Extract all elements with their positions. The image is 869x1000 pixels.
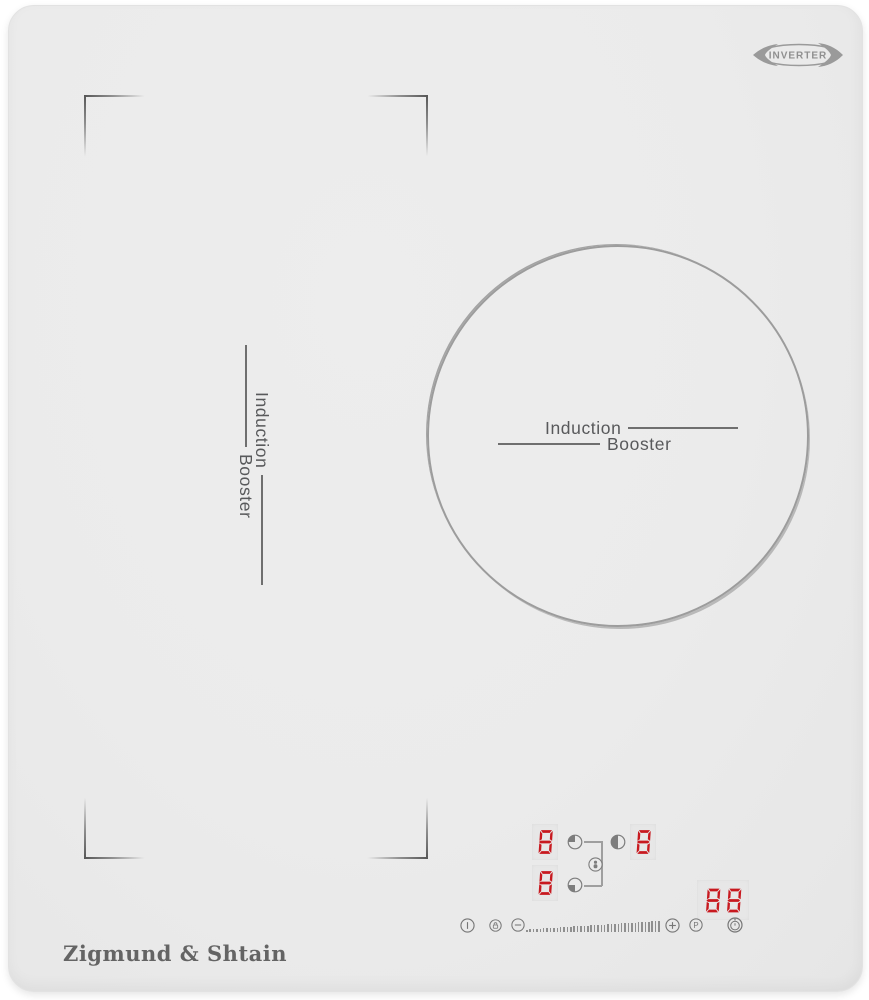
slider-tick[interactable] bbox=[594, 925, 596, 932]
power-button[interactable] bbox=[460, 918, 475, 933]
flex-zone-bracket-top-right bbox=[365, 95, 428, 159]
label-dash bbox=[245, 345, 247, 447]
slider-tick[interactable] bbox=[577, 926, 579, 932]
slider-tick[interactable] bbox=[645, 922, 647, 932]
alarm-clock-icon bbox=[727, 917, 743, 933]
increase-button[interactable] bbox=[665, 918, 680, 933]
power-display-right bbox=[630, 824, 656, 860]
cooktop-glass-surface: INVERTER Induction Booster Induction bbox=[8, 5, 863, 992]
slider-tick[interactable] bbox=[655, 921, 657, 932]
brand-logo: Zigmund & Shtain bbox=[63, 941, 287, 966]
zone-icon-left-rear bbox=[567, 834, 583, 850]
slider-tick[interactable] bbox=[536, 929, 538, 932]
power-display-left-front bbox=[532, 865, 558, 901]
slider-tick[interactable] bbox=[550, 928, 552, 932]
child-lock-indicator-icon bbox=[588, 857, 603, 872]
booster-p-button[interactable]: P bbox=[689, 918, 703, 932]
booster-p-icon: P bbox=[689, 918, 703, 932]
slider-tick[interactable] bbox=[560, 927, 562, 932]
inverter-badge: INVERTER bbox=[751, 40, 845, 70]
cooktop-product-image: INVERTER Induction Booster Induction bbox=[0, 0, 869, 1000]
padlock-icon bbox=[489, 919, 502, 932]
slider-tick[interactable] bbox=[557, 928, 559, 932]
slider-tick[interactable] bbox=[604, 925, 606, 933]
slider-tick[interactable] bbox=[648, 922, 650, 932]
slider-tick[interactable] bbox=[584, 926, 586, 932]
slider-tick[interactable] bbox=[641, 922, 643, 932]
slider-tick[interactable] bbox=[529, 929, 531, 932]
seven-segment-digit bbox=[634, 828, 653, 856]
slider-tick[interactable] bbox=[543, 928, 545, 932]
label-dash bbox=[261, 475, 263, 585]
flex-zone-bracket-top-left bbox=[84, 95, 147, 159]
left-zone-booster-label: Booster bbox=[238, 454, 254, 519]
slider-tick[interactable] bbox=[651, 921, 653, 932]
plus-icon bbox=[665, 918, 680, 933]
child-lock-button[interactable] bbox=[489, 919, 502, 932]
slider-tick[interactable] bbox=[638, 922, 640, 932]
slider-tick[interactable] bbox=[590, 925, 592, 932]
right-zone-booster-label: Booster bbox=[607, 436, 672, 452]
flex-zone-bracket-bottom-left bbox=[84, 795, 147, 859]
svg-text:P: P bbox=[693, 921, 698, 930]
right-zone-circle: Induction Booster bbox=[427, 245, 809, 627]
inverter-badge-label: INVERTER bbox=[769, 51, 828, 62]
power-display-left-rear bbox=[532, 824, 558, 860]
label-dash bbox=[628, 427, 738, 429]
seven-segment-digit bbox=[724, 887, 744, 914]
slider-tick[interactable] bbox=[611, 924, 613, 932]
slider-tick[interactable] bbox=[635, 923, 637, 932]
power-icon bbox=[460, 918, 475, 933]
zone-icon-left-front bbox=[567, 877, 583, 893]
slider-tick[interactable] bbox=[540, 929, 542, 932]
slider-tick[interactable] bbox=[601, 925, 603, 932]
left-zone-induction-label: Induction bbox=[254, 392, 270, 468]
flex-zone-bracket-bottom-right bbox=[365, 795, 428, 859]
slider-tick[interactable] bbox=[658, 921, 660, 932]
slider-tick[interactable] bbox=[526, 930, 528, 933]
decrease-button[interactable] bbox=[511, 918, 525, 932]
minus-icon bbox=[511, 918, 525, 932]
slider-tick[interactable] bbox=[618, 924, 620, 932]
slider-tick[interactable] bbox=[628, 923, 630, 932]
slider-tick[interactable] bbox=[607, 924, 609, 932]
slider-tick[interactable] bbox=[573, 926, 575, 932]
slider-tick[interactable] bbox=[597, 925, 599, 932]
seven-segment-digit bbox=[536, 869, 555, 897]
slider-tick[interactable] bbox=[587, 926, 589, 932]
slider-tick[interactable] bbox=[624, 923, 626, 932]
zone-connector-line bbox=[584, 841, 602, 843]
zone-icon-right bbox=[610, 834, 626, 850]
slider-tick[interactable] bbox=[553, 928, 555, 932]
slider-tick[interactable] bbox=[570, 927, 572, 932]
left-zone-label: Induction Booster bbox=[238, 345, 270, 585]
slider-tick[interactable] bbox=[563, 927, 565, 932]
slider-tick[interactable] bbox=[546, 928, 548, 932]
power-slider[interactable] bbox=[526, 920, 662, 932]
slider-tick[interactable] bbox=[631, 923, 633, 932]
slider-tick[interactable] bbox=[580, 926, 582, 932]
label-dash bbox=[498, 443, 600, 445]
seven-segment-digit bbox=[703, 887, 723, 914]
slider-tick[interactable] bbox=[533, 929, 535, 932]
timer-display bbox=[697, 880, 749, 920]
right-zone-label: Induction Booster bbox=[498, 420, 738, 452]
slider-tick[interactable] bbox=[621, 923, 623, 932]
slider-tick[interactable] bbox=[567, 927, 569, 932]
slider-tick[interactable] bbox=[614, 924, 616, 932]
seven-segment-digit bbox=[536, 828, 555, 856]
zone-connector-line bbox=[584, 885, 602, 887]
timer-button[interactable] bbox=[727, 917, 743, 933]
